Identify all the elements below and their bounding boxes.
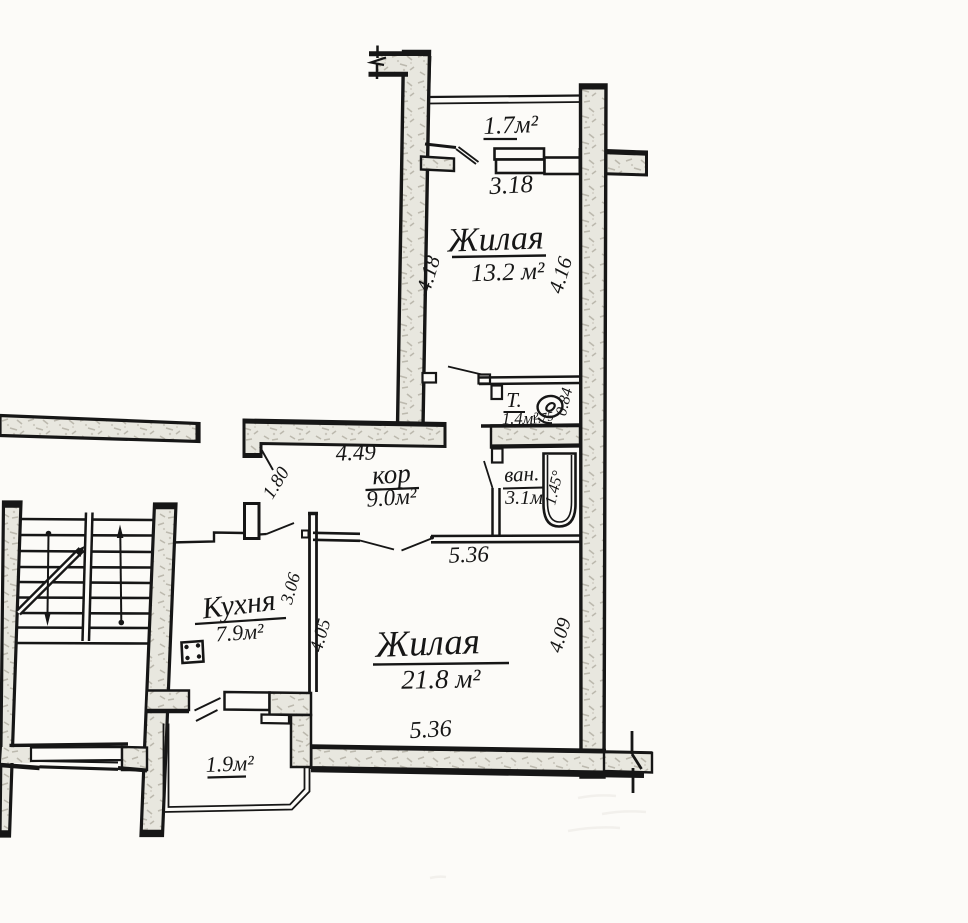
svg-text:1.7м²: 1.7м²	[483, 111, 539, 140]
svg-text:Жилая: Жилая	[374, 621, 481, 666]
svg-text:3.1м: 3.1м	[504, 487, 543, 509]
svg-text:3.18: 3.18	[488, 171, 535, 200]
svg-text:1.9м²: 1.9м²	[205, 750, 254, 777]
svg-text:7.9м²: 7.9м²	[215, 618, 265, 646]
svg-text:Жилая: Жилая	[446, 219, 544, 259]
svg-text:5.36: 5.36	[409, 716, 452, 744]
svg-text:ван.: ван.	[503, 461, 539, 487]
svg-text:21.8 м²: 21.8 м²	[401, 663, 482, 694]
svg-text:9.0м²: 9.0м²	[366, 483, 419, 512]
svg-text:5.36: 5.36	[448, 541, 490, 567]
svg-text:13.2 м²: 13.2 м²	[471, 258, 546, 288]
